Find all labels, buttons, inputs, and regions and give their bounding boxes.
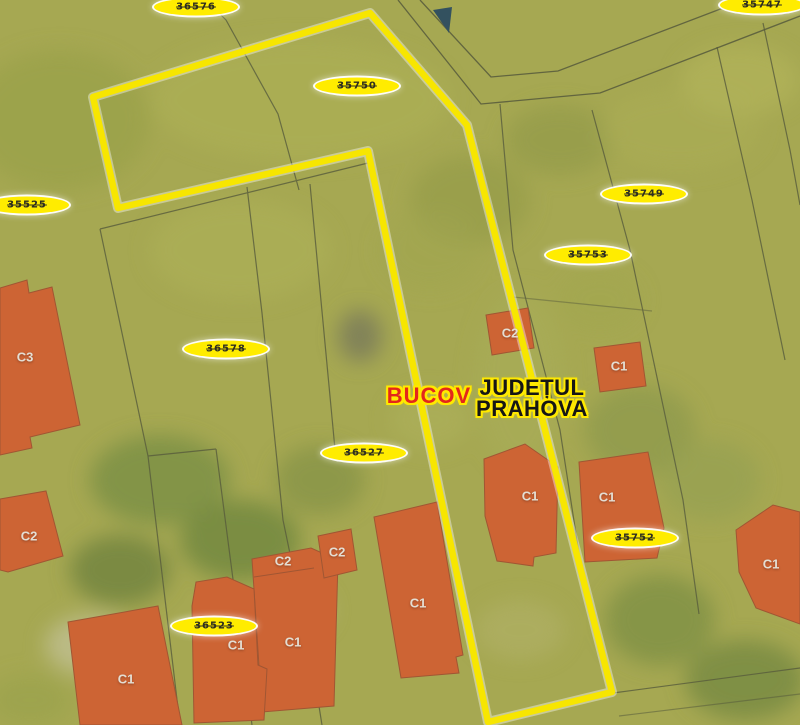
parcel-number: 36578	[206, 344, 246, 355]
building-label: C2	[329, 545, 346, 560]
map-canvas[interactable]: C3 C2 C1 C1 C1 C1 C2 C2 C2 C1 C1 C1 C1 B…	[0, 0, 800, 725]
county-label-line1: JUDEȚUL	[476, 377, 588, 398]
parcel-number-badge[interactable]: 35753	[546, 247, 630, 264]
building-label: C1	[285, 635, 302, 650]
parcel-number: 36523	[194, 621, 234, 632]
parcel-number: 35747	[742, 0, 782, 11]
parcel-number: 35750	[337, 81, 377, 92]
locality-label: BUCOV	[387, 383, 471, 409]
building-label: C2	[21, 529, 38, 544]
parcel-number-badge[interactable]: 35752	[593, 530, 677, 547]
county-label-line2: PRAHOVA	[476, 398, 588, 419]
building-label: C2	[275, 554, 292, 569]
building-label: C1	[611, 359, 628, 374]
building-shape-c1-in-parcel[interactable]	[484, 444, 558, 566]
parcel-number-badge[interactable]: 36527	[322, 445, 406, 462]
building-label: C1	[118, 672, 135, 687]
parcel-number-badge[interactable]: 35750	[315, 78, 399, 95]
parcel-number: 35753	[568, 250, 608, 261]
building-label: C3	[17, 350, 34, 365]
building-label: C1	[599, 490, 616, 505]
map-graphics	[0, 0, 800, 725]
building-label: C1	[228, 638, 245, 653]
parcel-number: 36576	[176, 2, 216, 13]
parcel-number: 36527	[344, 448, 384, 459]
building-label: C1	[763, 557, 780, 572]
building-label: C1	[410, 596, 427, 611]
parcel-number: 35749	[624, 189, 664, 200]
parcel-number: 35525	[7, 200, 47, 211]
parcel-number-badge[interactable]: 35749	[602, 186, 686, 203]
building-label: C1	[522, 489, 539, 504]
building-label: C2	[502, 326, 519, 341]
parcel-number-badge[interactable]: 36578	[184, 341, 268, 358]
parcel-number-badge[interactable]: 36523	[172, 618, 256, 635]
county-label: JUDEȚUL PRAHOVA	[476, 377, 588, 419]
parcel-number: 35752	[615, 533, 655, 544]
